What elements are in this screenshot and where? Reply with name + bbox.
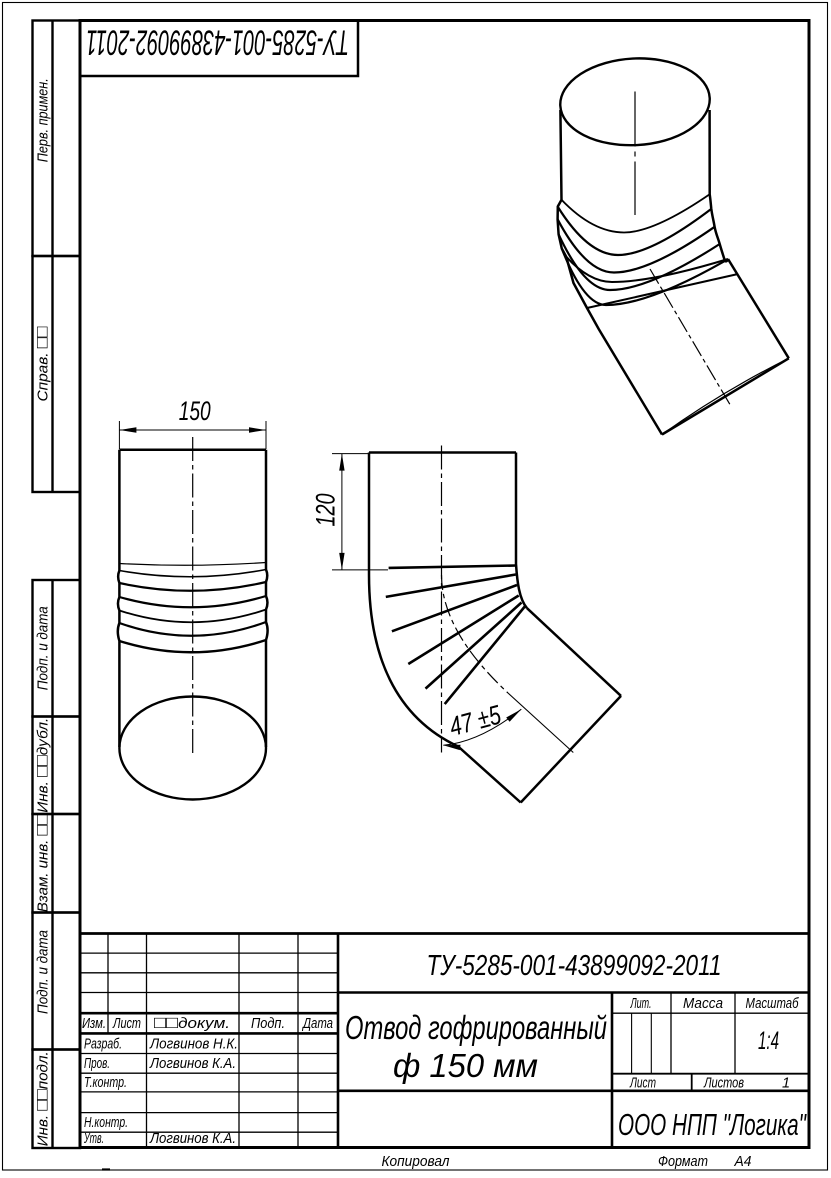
svg-text:А4: А4: [734, 1153, 752, 1170]
svg-text:Отвод гофрированный: Отвод гофрированный: [345, 1009, 607, 1046]
svg-text:Н.контр.: Н.контр.: [84, 1115, 128, 1131]
svg-text:Инв. □□дубл.: Инв. □□дубл.: [32, 718, 52, 813]
svg-text:ТУ-5285-001-43899092-2011: ТУ-5285-001-43899092-2011: [427, 950, 722, 982]
svg-text:Листов: Листов: [703, 1076, 744, 1092]
svg-text:120: 120: [311, 494, 341, 527]
svg-text:1: 1: [782, 1076, 790, 1092]
svg-text:Т.контр.: Т.контр.: [84, 1075, 127, 1091]
svg-text:ООО НПП "Логика": ООО НПП "Логика": [618, 1107, 807, 1142]
svg-text:Взам. инв. □□: Взам. инв. □□: [32, 814, 52, 912]
svg-text:□□докум.: □□докум.: [154, 1013, 230, 1032]
svg-text:Утв.: Утв.: [83, 1131, 104, 1147]
svg-text:Лист: Лист: [112, 1016, 141, 1032]
svg-text:Дата: Дата: [301, 1016, 333, 1032]
svg-text:Подп. и дата: Подп. и дата: [35, 930, 52, 1014]
svg-text:Логвинов К.А.: Логвинов К.А.: [149, 1131, 236, 1147]
svg-text:Формат: Формат: [658, 1153, 708, 1170]
svg-text:Логвинов К.А.: Логвинов К.А.: [149, 1056, 236, 1072]
svg-text:Пров.: Пров.: [84, 1056, 110, 1072]
svg-text:Изм.: Изм.: [82, 1016, 106, 1032]
svg-text:150: 150: [179, 396, 211, 426]
svg-text:Подп.: Подп.: [251, 1016, 285, 1032]
svg-text:ф 150 мм: ф 150 мм: [393, 1047, 538, 1084]
svg-text:Лит.: Лит.: [630, 996, 652, 1012]
svg-text:Подп. и дата: Подп. и дата: [35, 606, 52, 690]
svg-text:Копировал: Копировал: [382, 1153, 450, 1170]
svg-text:Масштаб: Масштаб: [746, 996, 800, 1012]
svg-text:Масса: Масса: [683, 996, 723, 1012]
svg-text:Перв. примен.: Перв. примен.: [35, 78, 52, 162]
svg-text:Инв. □□подл.: Инв. □□подл.: [32, 1051, 52, 1146]
svg-text:Лист: Лист: [629, 1076, 656, 1092]
svg-text:Разраб.: Разраб.: [84, 1037, 122, 1053]
svg-text:1:4: 1:4: [758, 1027, 779, 1055]
svg-text:Логвинов Н.К.: Логвинов Н.К.: [149, 1037, 238, 1053]
svg-text:Справ. □□: Справ. □□: [32, 326, 52, 401]
svg-text:ТУ-5285-001-43899092-2011: ТУ-5285-001-43899092-2011: [86, 23, 349, 62]
